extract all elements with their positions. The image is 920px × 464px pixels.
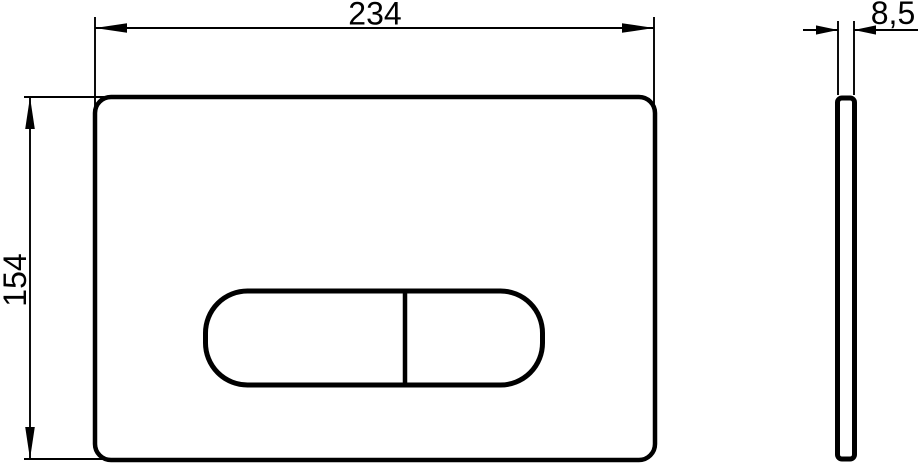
height-arrow-bottom bbox=[25, 427, 35, 459]
side-view bbox=[838, 98, 855, 459]
plate-front-outline bbox=[95, 97, 655, 460]
height-dimension: 154 bbox=[0, 97, 104, 459]
width-dimension: 234 bbox=[95, 0, 654, 107]
thickness-arrow-left bbox=[816, 25, 838, 34]
height-arrow-top bbox=[25, 97, 35, 129]
thickness-dim-label: 8,5 bbox=[871, 0, 915, 31]
width-dim-label: 234 bbox=[348, 0, 401, 32]
plate-side-outline bbox=[838, 98, 855, 459]
thickness-dimension: 8,5 bbox=[803, 0, 918, 95]
height-dim-label: 154 bbox=[0, 253, 33, 306]
front-view bbox=[95, 97, 655, 460]
flush-button-pill-outline bbox=[206, 291, 543, 385]
width-arrow-left bbox=[95, 23, 127, 33]
flush-buttons bbox=[206, 291, 543, 385]
flush-plate-technical-drawing: 234 154 8,5 bbox=[0, 0, 920, 464]
width-arrow-right bbox=[622, 23, 654, 33]
